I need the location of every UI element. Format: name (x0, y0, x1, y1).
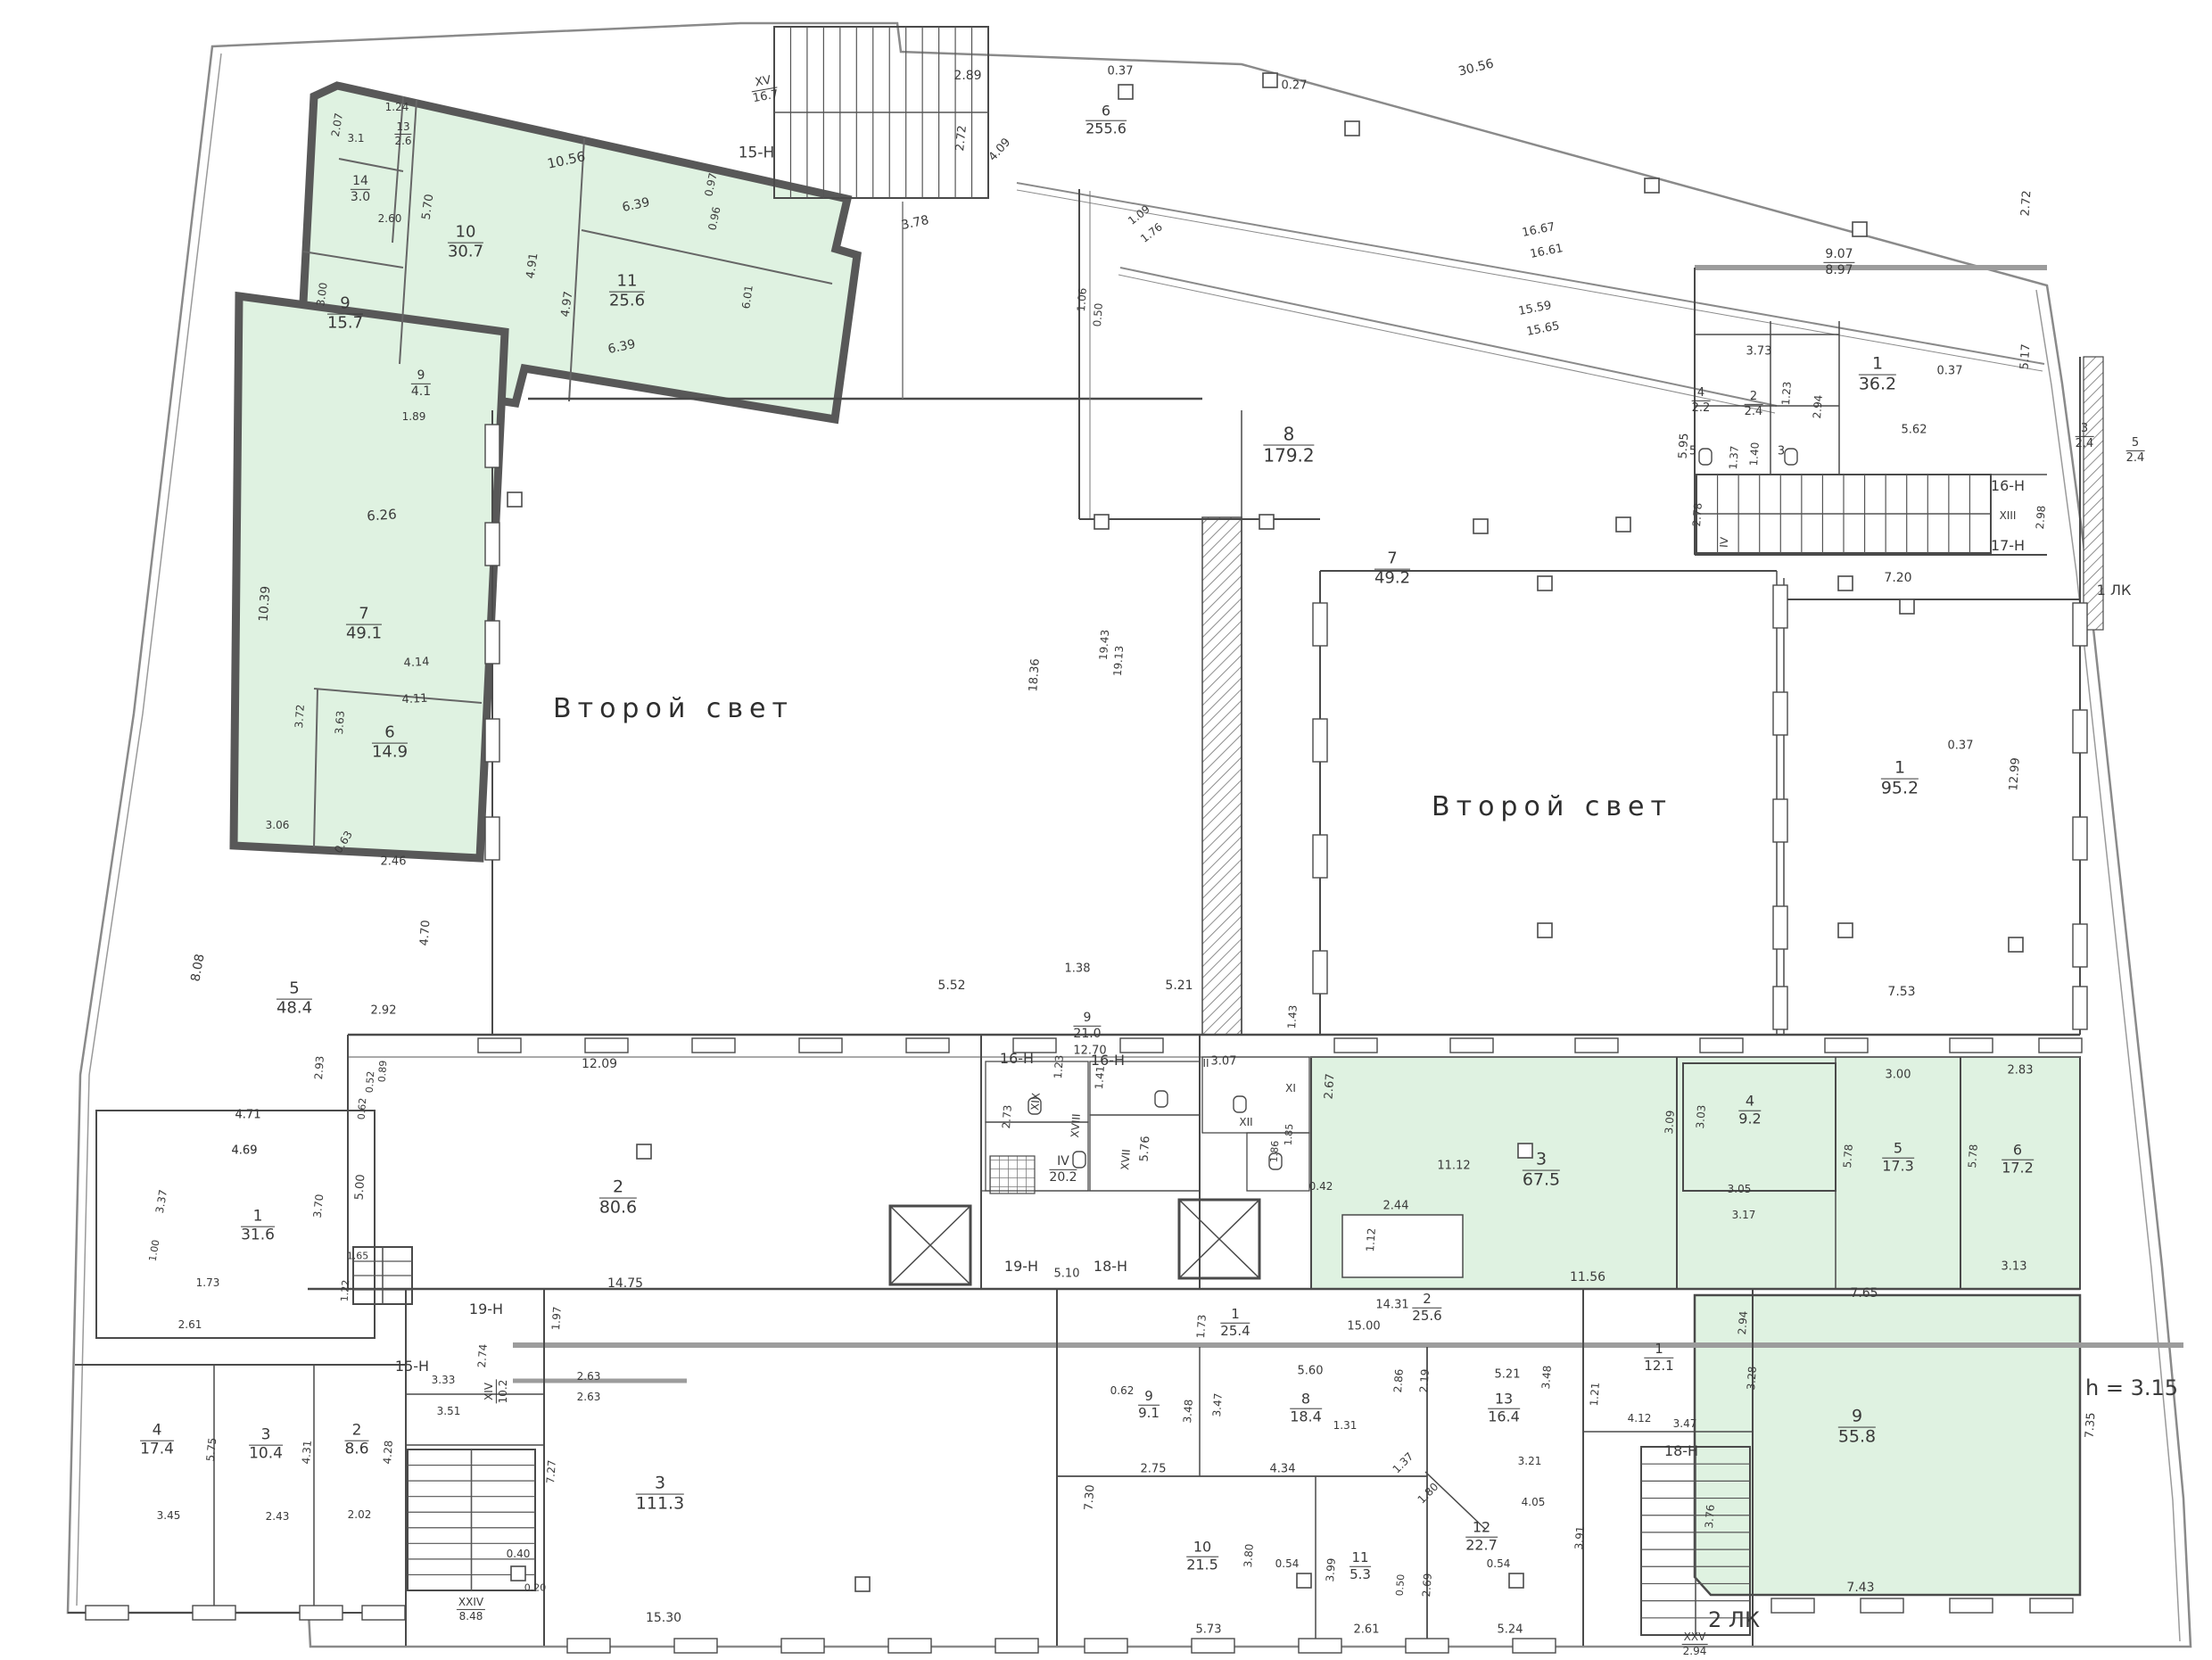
room-label: 3111.3 (636, 1475, 684, 1514)
dim-label: 2.43 (266, 1511, 290, 1522)
dim-label: 15.30 (646, 1612, 681, 1624)
room-label: 517.3 (1882, 1142, 1914, 1175)
room-label: 921.0 (1073, 1012, 1101, 1040)
dim-label: 7.35 (2084, 1412, 2098, 1439)
room-label: XXIV8.48 (457, 1597, 485, 1622)
dim-label: 3.48 (1182, 1399, 1194, 1423)
dim-label: 18.36 (1028, 658, 1042, 692)
dim-label: 3.80 (1242, 1543, 1255, 1567)
dim-label: 2.61 (1354, 1624, 1380, 1636)
dim-label: 3.70 (312, 1193, 326, 1218)
dim-label: 7.65 (1850, 1287, 1878, 1300)
room-label: 417.4 (140, 1424, 174, 1458)
dim-label: 3.00 (1886, 1070, 1911, 1081)
dim-label: 5.10 (1054, 1268, 1080, 1280)
dim-label: 1.73 (1195, 1314, 1208, 1338)
dim-label: 15.00 (1347, 1321, 1380, 1333)
dim-label: 3.05 (1728, 1184, 1752, 1194)
dim-label: 1.00 (147, 1239, 161, 1262)
dim-label: 1.38 (1065, 963, 1091, 975)
dim-label: XVII (1119, 1149, 1132, 1170)
room-label: 9.078.97 (1823, 248, 1854, 277)
room-label: 131.6 (241, 1210, 275, 1244)
dim-label: 3.17 (1732, 1210, 1756, 1220)
dim-label: 1.89 (402, 411, 426, 422)
dim-label: 4.28 (382, 1440, 394, 1464)
dim-label: 4.14 (403, 657, 430, 669)
dim-label: 2.89 (953, 70, 981, 82)
dim-label: 10.39 (258, 586, 273, 623)
dim-label: 3.21 (1518, 1456, 1542, 1466)
dim-label: 1.80 (1416, 1481, 1440, 1505)
dim-label: 4.11 (401, 693, 428, 706)
dim-label: 0.54 (1275, 1558, 1300, 1569)
dim-label: 4.05 (1522, 1497, 1546, 1507)
dim-label: 14.75 (607, 1277, 643, 1290)
dim-label: 0.50 (1395, 1573, 1407, 1596)
dim-label: 16.67 (1521, 221, 1556, 239)
dim-label: 3.99 (1325, 1557, 1337, 1582)
dim-label: 5.78 (1967, 1144, 1979, 1168)
dim-label: 2.92 (371, 1005, 397, 1017)
dim-label: 3.76 (1704, 1504, 1716, 1528)
dim-label: 3.78 (900, 214, 929, 232)
dim-label: 7.30 (1084, 1484, 1097, 1511)
dim-label: 8.08 (189, 953, 206, 982)
dim-label: 15.65 (1525, 320, 1560, 338)
dim-label: 3.03 (1695, 1104, 1707, 1128)
room-label: 1021.5 (1186, 1540, 1218, 1573)
dim-label: 5.17 (2019, 343, 2033, 370)
dim-label: 11.56 (1570, 1271, 1605, 1284)
dim-label: 1.12 (1365, 1227, 1377, 1251)
room-label: 749.1 (346, 607, 382, 643)
dim-label: 0.20 (524, 1583, 547, 1593)
dim-label: 5.21 (1165, 979, 1193, 992)
dim-label: 1.73 (196, 1277, 220, 1288)
dim-label: 7.43 (1846, 1582, 1874, 1594)
dim-label: 0.37 (1108, 66, 1134, 78)
dim-label: 16-Н (1991, 479, 2025, 493)
room-label: 115.3 (1349, 1551, 1371, 1582)
dim-label: 2.94 (1737, 1310, 1749, 1334)
dim-label: h = 3.15 (2085, 1377, 2178, 1399)
dim-label: 12.99 (2008, 757, 2022, 791)
dim-label: 1.37 (1728, 445, 1740, 469)
dim-label: 16-Н (1091, 1053, 1125, 1068)
labels-layer: 1.242.073.1132.6143.02.601.8910.565.704.… (0, 0, 2212, 1660)
dim-label: 18-Н (1664, 1444, 1698, 1458)
dim-label: 15-Н (739, 146, 775, 161)
dim-label: 3.33 (432, 1375, 456, 1385)
dim-label: 5.00 (354, 1174, 367, 1201)
dim-label: 3.13 (2002, 1261, 2027, 1273)
room-label: 49.2 (1738, 1094, 1761, 1127)
dim-label: 1.23 (1052, 1054, 1065, 1078)
room-label: IV20.2 (1049, 1155, 1077, 1184)
dim-label: 4.70 (419, 920, 433, 946)
room-label: 818.4 (1290, 1392, 1322, 1425)
dim-label: 2.93 (313, 1055, 326, 1079)
room-label: 1030.7 (448, 225, 483, 261)
room-label: 132.6 (394, 121, 411, 146)
dim-label: 4.69 (232, 1145, 258, 1157)
dim-label: 3.51 (437, 1406, 461, 1416)
room-label: 1222.7 (1465, 1521, 1498, 1554)
room-label: 112.1 (1644, 1342, 1673, 1374)
dim-label: 3.47 (1211, 1392, 1224, 1416)
room-label: 94.1 (411, 369, 431, 398)
room-label: 143.0 (351, 175, 370, 203)
room-label: 32.4 (2076, 423, 2094, 450)
dim-label: 1.09 (1127, 203, 1151, 227)
dim-label: 7.20 (1884, 572, 1911, 584)
dim-label: XIX (1029, 1093, 1041, 1111)
dim-label: 0.97 (703, 172, 718, 198)
dim-label: 1.37 (1391, 1450, 1415, 1474)
dim-label: 17-Н (1991, 539, 2025, 553)
dim-label: 3.47 (1673, 1418, 1697, 1429)
dim-label: 4.09 (986, 136, 1012, 163)
dim-label: IV (1719, 537, 1730, 549)
dim-label: 3.48 (1540, 1365, 1553, 1389)
dim-label: 2.63 (577, 1371, 601, 1382)
dim-label: 4.34 (1270, 1464, 1296, 1475)
dim-label: 0.62 (357, 1097, 368, 1119)
dim-label: 5.24 (1498, 1624, 1523, 1636)
dim-label: 2.86 (1392, 1368, 1405, 1392)
dim-label: 0.50 (1092, 302, 1104, 326)
dim-label: 3.73 (1746, 346, 1772, 358)
dim-label: 19-Н (1004, 1259, 1038, 1274)
room-label: 6255.6 (1085, 104, 1127, 137)
dim-label: 1.40 (1748, 442, 1761, 466)
dim-label: 5.62 (1902, 425, 1927, 436)
dim-label: 5.76 (1139, 1136, 1152, 1162)
dim-label: 2.67 (1324, 1073, 1337, 1100)
dim-label: 2.74 (476, 1343, 489, 1367)
dim-label: 3 (1778, 446, 1785, 458)
dim-label: 18-Н (1094, 1259, 1127, 1274)
dim-label: 3.45 (157, 1510, 181, 1521)
dim-label: 1.43 (1286, 1004, 1299, 1028)
room-label: 195.2 (1881, 760, 1919, 798)
dim-label: 3.91 (1573, 1525, 1586, 1549)
dim-label: 2.78 (1691, 502, 1704, 526)
room-label: 8179.2 (1263, 425, 1314, 466)
dim-label: 4.31 (301, 1440, 313, 1464)
dim-label: XI (1285, 1083, 1296, 1094)
dim-label: 1.06 (1076, 287, 1088, 311)
dim-label: 3.09 (1663, 1110, 1676, 1134)
dim-label: 0.40 (507, 1549, 531, 1559)
room-label: 136.2 (1859, 356, 1896, 394)
dim-label: 4.12 (1628, 1413, 1652, 1424)
dim-label: 1.23 (1780, 381, 1793, 405)
dim-label: 4.71 (235, 1110, 261, 1121)
dim-label: 5.70 (421, 194, 436, 220)
dim-label: 4.91 (525, 252, 541, 279)
dim-label: 2.63 (577, 1392, 601, 1402)
dim-label: II (1202, 1058, 1209, 1069)
dim-label: 1.41 (1094, 1065, 1106, 1089)
dim-label: 0.96 (706, 206, 722, 232)
dim-label: 5.78 (1842, 1144, 1854, 1168)
room-label: XIV10.2 (483, 1380, 508, 1404)
room-label: 617.2 (2002, 1144, 2034, 1177)
floor-plan: 1.242.073.1132.6143.02.601.8910.565.704.… (0, 0, 2212, 1660)
dim-label: 0.54 (1487, 1558, 1511, 1569)
dim-label: 2.72 (2020, 190, 2034, 217)
dim-label: 2.94 (1812, 394, 1824, 418)
dim-label: 3.06 (266, 820, 290, 830)
dim-label: 19.13 (1112, 645, 1125, 676)
dim-label: 1.65 (347, 1251, 369, 1261)
dim-label: XII (1239, 1117, 1252, 1127)
dim-label: 2.02 (348, 1509, 372, 1520)
room-label: 99.1 (1138, 1390, 1160, 1421)
dim-label: 10.56 (546, 150, 586, 171)
dim-label: 2.60 (378, 213, 402, 224)
dim-label: 3.37 (154, 1189, 169, 1214)
dim-label: 6.39 (621, 196, 650, 214)
room-label: XV16.7 (749, 74, 780, 105)
dim-label: 16-Н (1000, 1052, 1034, 1066)
dim-label: 1.85 (1283, 1123, 1295, 1145)
area-title-text: Второй свет (1432, 794, 1672, 821)
dim-label: 5.95 (1678, 433, 1691, 459)
dim-label: 2.46 (381, 856, 407, 868)
dim-label: 16.61 (1529, 243, 1564, 260)
area-title-text: Второй свет (553, 696, 794, 723)
room-label: 310.4 (249, 1428, 283, 1463)
dim-label: 6.26 (367, 508, 397, 523)
dim-label: 2.07 (330, 112, 344, 137)
dim-label: 2.72 (954, 125, 969, 152)
room-label: XXV2.94 (1682, 1631, 1708, 1656)
dim-label: 5.60 (1298, 1366, 1324, 1377)
room-label: 125.4 (1220, 1308, 1250, 1339)
dim-label: 30.56 (1457, 57, 1495, 78)
dim-label: 2.75 (1141, 1464, 1167, 1475)
room-label: 548.4 (276, 981, 312, 1018)
room-label: 1125.6 (609, 274, 645, 310)
dim-label: 7.53 (1887, 986, 1915, 998)
room-label: 367.5 (1523, 1152, 1560, 1190)
dim-label: 2.44 (1383, 1201, 1409, 1212)
dim-label: 1.22 (340, 1279, 351, 1301)
room-label: 955.8 (1838, 1408, 1876, 1447)
dim-label: 3.72 (293, 704, 306, 728)
dim-label: 5.73 (1196, 1624, 1222, 1636)
dim-label: 19-Н (469, 1302, 503, 1317)
dim-label: 2.61 (178, 1319, 202, 1330)
dim-label: 0.37 (1937, 366, 1963, 377)
dim-label: 1.31 (1333, 1420, 1358, 1431)
dim-label: 1.24 (385, 102, 409, 112)
dim-label: XIII (2000, 510, 2017, 521)
dim-label: 1 ЛК (2097, 583, 2132, 598)
dim-label: 3.1 (347, 133, 364, 144)
dim-label: 2.73 (1001, 1104, 1013, 1128)
dim-label: 3.63 (334, 710, 346, 734)
dim-label: 0.52 (365, 1070, 376, 1093)
room-label: 915.7 (327, 296, 363, 333)
room-label: 42.2 (1692, 387, 1711, 414)
room-label: 280.6 (599, 1179, 637, 1218)
dim-label: 2 ЛК (1708, 1609, 1760, 1631)
dim-label: 6.01 (740, 285, 755, 310)
dim-label: 0.42 (1309, 1181, 1333, 1192)
room-label: 749.2 (1374, 551, 1410, 588)
dim-label: 19.43 (1098, 629, 1110, 660)
dim-label: 15-Н (395, 1359, 429, 1374)
dim-label: 2.69 (1421, 1573, 1433, 1597)
dim-label: 0.63 (333, 829, 354, 855)
room-label: 28.6 (344, 1424, 368, 1458)
dim-label: 5.75 (205, 1437, 219, 1462)
room-label: 225.6 (1412, 1292, 1441, 1324)
dim-label: 0.27 (1282, 80, 1308, 92)
dim-label: 1.97 (550, 1306, 563, 1330)
dim-label: 1.76 (1139, 221, 1164, 244)
dim-label: 5.52 (937, 979, 965, 992)
dim-label: 0.89 (377, 1060, 389, 1082)
dim-label: 5.21 (1495, 1369, 1521, 1381)
dim-label: 11.12 (1437, 1160, 1470, 1172)
room-label: 1316.4 (1488, 1392, 1520, 1425)
dim-label: 0.62 (1110, 1385, 1135, 1396)
dim-label: 3.28 (1746, 1366, 1758, 1390)
dim-label: 12.09 (582, 1058, 617, 1070)
room-label: 52.4 (2126, 437, 2145, 464)
dim-label: 7.27 (545, 1459, 557, 1483)
dim-label: 1.21 (1589, 1382, 1601, 1406)
dim-label: 3.07 (1211, 1056, 1237, 1068)
dim-label: 2.19 (1418, 1368, 1431, 1392)
dim-label: 6.39 (607, 338, 636, 356)
dim-label: 4.97 (560, 291, 575, 318)
dim-label: 14.31 (1375, 1300, 1408, 1311)
room-label: 22.4 (1745, 391, 1763, 417)
dim-label: XVIII (1069, 1113, 1082, 1138)
dim-label: 2.83 (2008, 1065, 2034, 1077)
room-label: 614.9 (372, 725, 408, 762)
dim-label: 1.86 (1269, 1140, 1281, 1162)
dim-label: 2.98 (2035, 505, 2047, 529)
dim-label: 15.59 (1517, 300, 1552, 318)
dim-label: 0.37 (1948, 740, 1974, 752)
